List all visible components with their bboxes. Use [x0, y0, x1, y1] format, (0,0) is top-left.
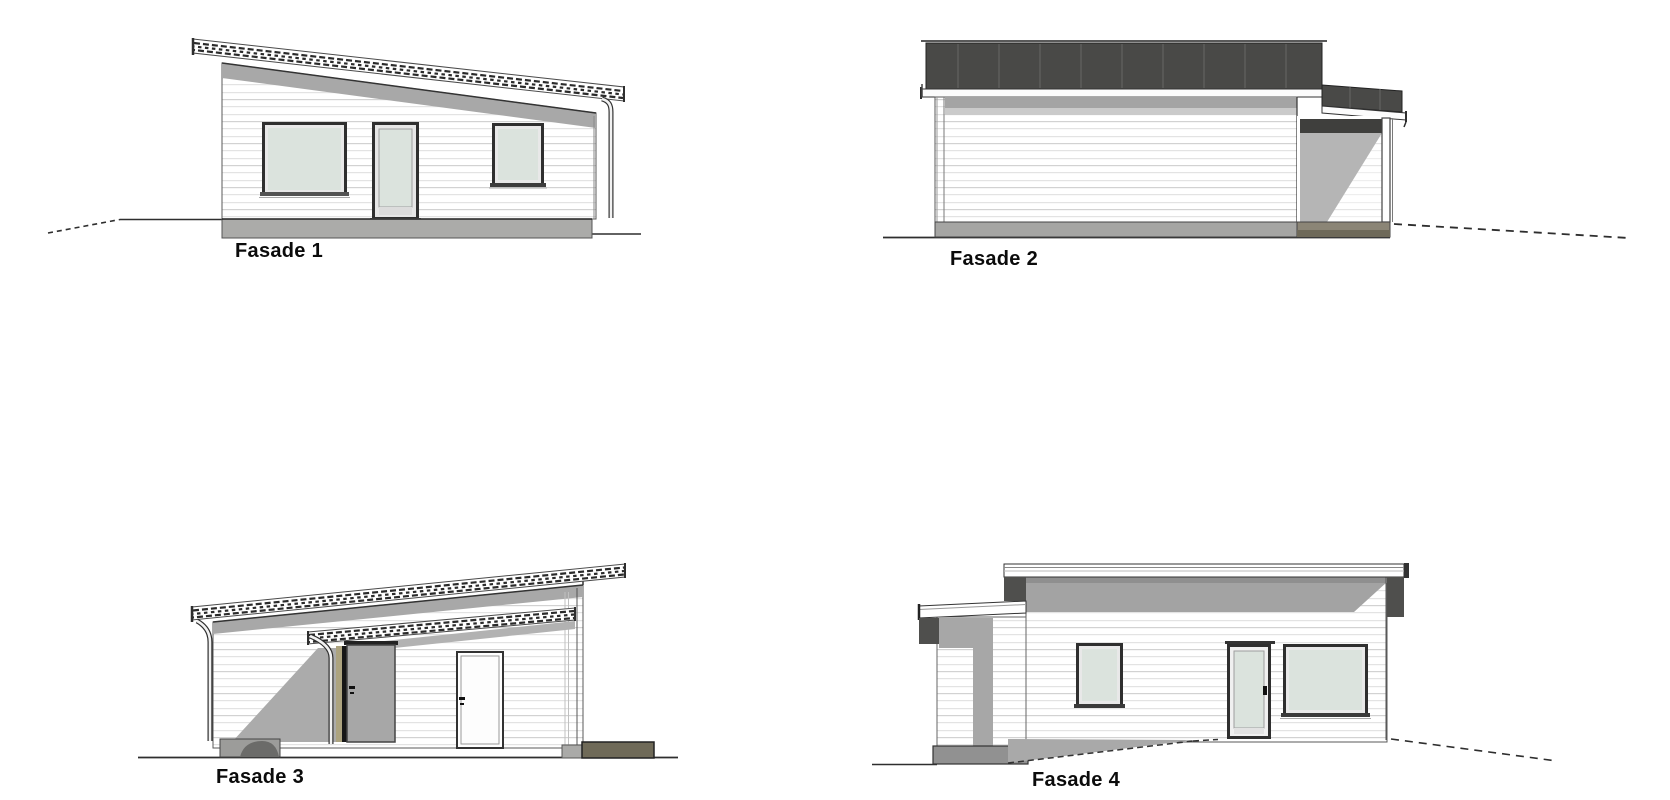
fasade-1-drawing [48, 38, 641, 238]
fasade-2-wall [935, 97, 1297, 222]
fasade-4-door-handle [1263, 686, 1267, 695]
fasade-3-white-door-handle [459, 697, 465, 700]
fasade-2-roof [921, 41, 1327, 106]
fasade-1-label: Fasade 1 [235, 240, 323, 263]
fasade-1-window-small [489, 123, 547, 188]
fasade-2-carport-post [1382, 118, 1390, 222]
fasade-4-terrain [1008, 739, 1218, 763]
fasade-4-drawing [872, 563, 1557, 765]
fasade-4-carport-fascia [919, 601, 1026, 618]
fasade-4-window-large [1280, 644, 1371, 719]
fasade-3-downspout-left [197, 621, 210, 741]
fasade-4-roof-end-right [1387, 577, 1404, 617]
fasade-2-foundation [935, 222, 1390, 237]
fasade-4-label: Fasade 4 [1032, 769, 1120, 792]
elevation-sheet: Fasade 1 Fasade 2 Fasade 3 Fasade 4 [0, 0, 1670, 800]
fasade-1-downspout [602, 99, 611, 218]
fasade-2-label: Fasade 2 [950, 248, 1038, 271]
fasade-4-window-small [1074, 643, 1125, 708]
fasade-3-grey-door-handle [349, 686, 355, 689]
fasade-3-drawing [138, 563, 678, 758]
fasade-3-grey-door [336, 641, 398, 742]
fasade-1-glazed-door [370, 122, 421, 222]
fasade-2-fascia [921, 89, 1327, 97]
elevation-drawings [0, 0, 1670, 800]
fasade-4-glazed-door [1225, 641, 1275, 739]
fasade-3-white-door [457, 652, 503, 748]
fasade-3-label: Fasade 3 [216, 766, 304, 789]
fasade-1-window-large [259, 122, 350, 198]
fasade-2-drawing [883, 41, 1629, 238]
fasade-2-carport-opening [1297, 116, 1393, 222]
fasade-4-carport-soffit [919, 618, 939, 644]
fasade-1-foundation [222, 219, 592, 238]
fasade-4-roof-end-left [1004, 577, 1026, 601]
fasade-2-eave-shadow [945, 97, 1297, 108]
